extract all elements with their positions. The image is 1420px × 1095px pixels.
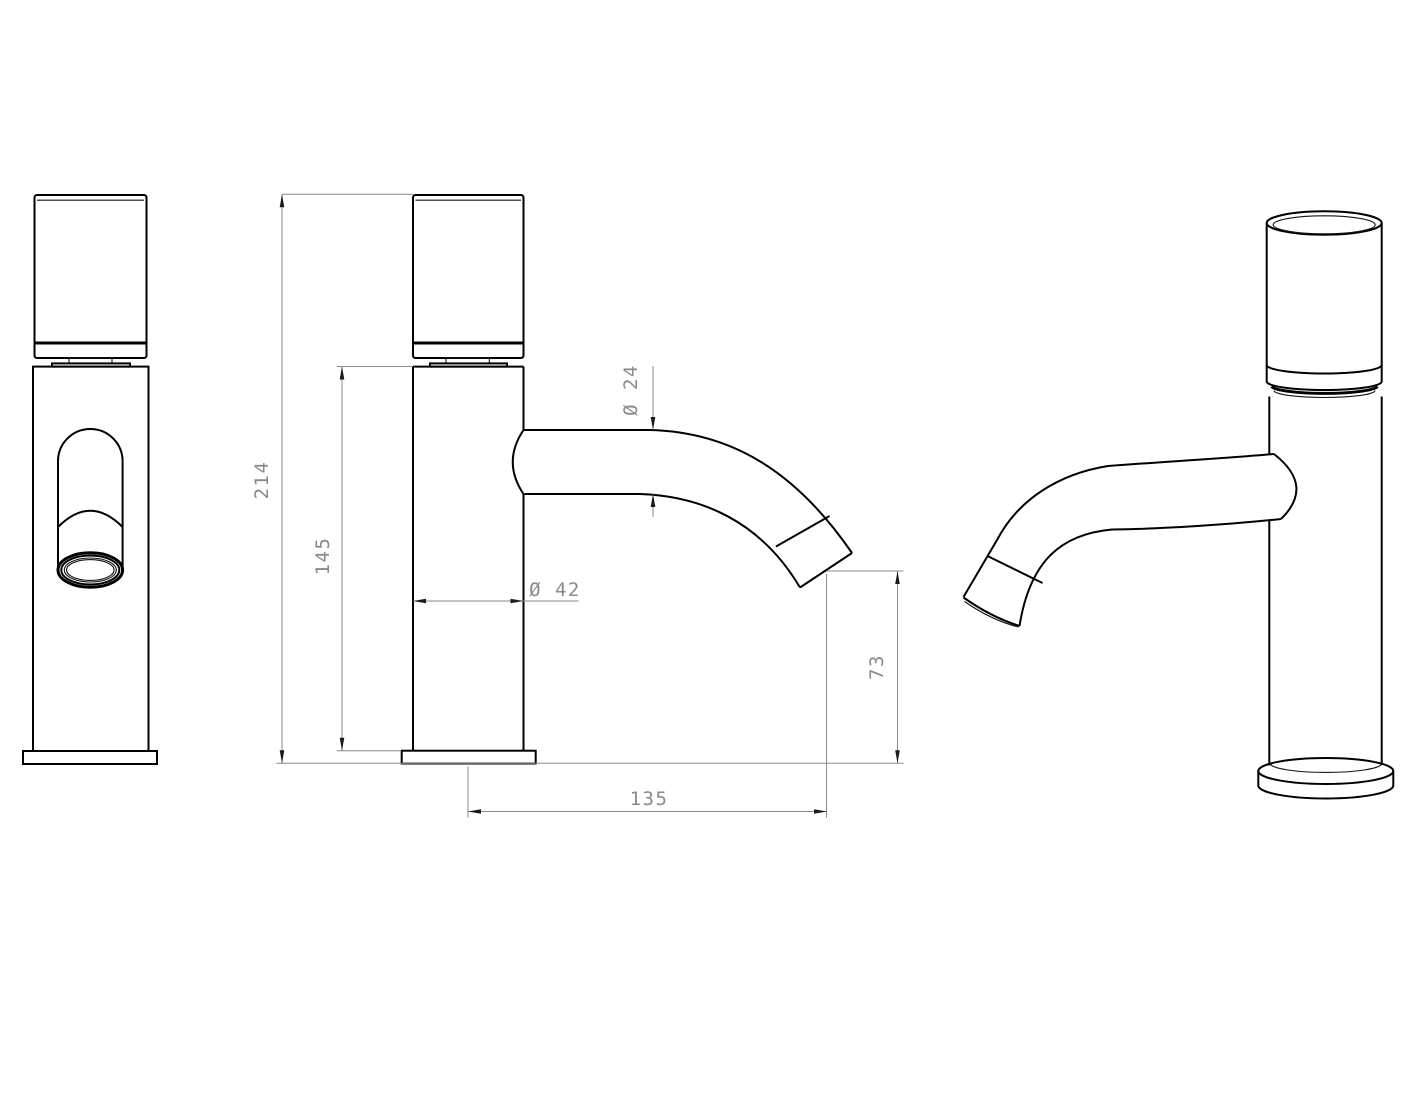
dimension-overall-height: 214 [251, 194, 904, 763]
arrow-left-icon [413, 599, 426, 604]
dim-label-spout-reach: 135 [630, 788, 669, 810]
dimension-body-height: 145 [312, 367, 412, 751]
arrow-down-icon [651, 417, 656, 430]
spout-root-cap-3d [1274, 454, 1296, 519]
drawing-sheet: 214 145 Ø 42 Ø 24 73 135 [0, 0, 1420, 1095]
spout-side-bottom-edge [525, 494, 801, 588]
spout-front-tip-junction-arc [58, 511, 123, 527]
body-side [413, 367, 524, 751]
perspective-view [964, 211, 1394, 798]
body-base-joint-arc-3d [1271, 764, 1382, 772]
spout-outlet-aerator-ring [67, 560, 115, 581]
dim-label-body-height: 145 [312, 537, 334, 576]
arrow-up-icon [340, 367, 345, 380]
dim-label-body-diameter: Ø 42 [529, 579, 581, 601]
spout-outlet-inner-ring [64, 558, 116, 582]
dim-label-overall-height: 214 [251, 461, 273, 500]
arrow-down-icon [340, 738, 345, 751]
arrow-left-icon [468, 809, 481, 814]
handle-front [35, 195, 147, 358]
spout-bottom-edge-3d [1020, 519, 1282, 626]
spout-body-intersection-arc [513, 430, 524, 494]
arrow-right-icon [814, 809, 827, 814]
side-view [402, 195, 852, 764]
arrow-up-icon [280, 194, 285, 207]
arrow-right-icon [511, 599, 524, 604]
arrow-up-icon [895, 571, 900, 584]
arrow-down-icon [895, 750, 900, 763]
base-flange-top-ellipse-3d [1258, 758, 1393, 784]
dim-label-spout-diameter: Ø 24 [620, 364, 642, 416]
spout-tip-face-outer-3d [964, 598, 1020, 627]
dim-label-outlet-height: 73 [866, 654, 888, 680]
spout-front-top-arc [58, 429, 123, 461]
aerator-joint-line-3d [988, 556, 1043, 583]
faucet-three-view-drawing: 214 145 Ø 42 Ø 24 73 135 [0, 0, 1420, 1095]
spout-side-top-edge [524, 430, 853, 553]
dimension-outlet-height: 73 [827, 571, 904, 763]
arrow-up-icon [651, 494, 656, 507]
dimension-body-diameter: Ø 42 [413, 579, 581, 603]
base-flange-bottom-arc-3d [1258, 786, 1393, 799]
arrow-down-icon [280, 750, 285, 763]
base-flange-side [402, 751, 536, 764]
body-front [33, 367, 149, 751]
handle-band-3d [1267, 365, 1382, 374]
spout-top-edge-3d [964, 454, 1275, 597]
handle-top-rim-3d [1267, 211, 1382, 234]
dimension-spout-reach: 135 [468, 574, 827, 818]
handle-bottom-edge-3d [1267, 382, 1382, 391]
base-flange-front [23, 751, 157, 764]
aerator-joint-line-side [776, 516, 830, 547]
front-view [23, 195, 157, 764]
handle-side [413, 195, 524, 358]
handle-top-chamfer-3d [1273, 216, 1375, 234]
